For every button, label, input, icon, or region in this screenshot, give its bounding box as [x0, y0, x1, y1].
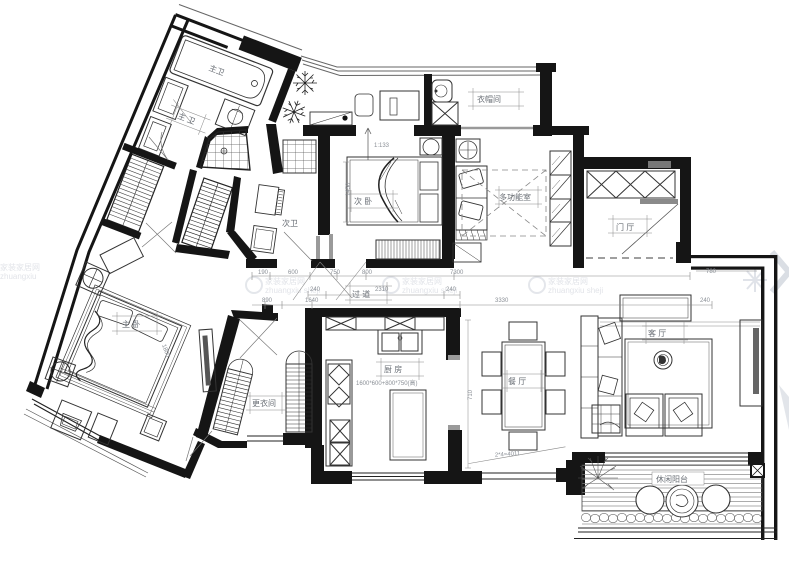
- svg-text:240: 240: [310, 287, 321, 293]
- svg-text:过 道: 过 道: [352, 289, 370, 299]
- svg-text:家装家居网: 家装家居网: [548, 276, 588, 286]
- svg-text:次 卧: 次 卧: [354, 196, 372, 206]
- svg-text:600: 600: [288, 270, 299, 276]
- svg-text:890: 890: [262, 298, 273, 304]
- svg-text:次卫: 次卫: [282, 218, 298, 228]
- svg-text:客 厅: 客 厅: [648, 328, 666, 338]
- svg-text:1600*600+800*750(高): 1600*600+800*750(高): [356, 379, 418, 387]
- svg-text:门 厅: 门 厅: [616, 222, 634, 232]
- svg-text:240: 240: [446, 287, 457, 293]
- svg-text:3330: 3330: [495, 298, 509, 304]
- svg-text:厨 房: 厨 房: [384, 364, 402, 374]
- svg-text:190: 190: [258, 270, 269, 276]
- svg-text:1640: 1640: [305, 298, 319, 304]
- svg-text:衣帽间: 衣帽间: [477, 94, 501, 104]
- svg-text:800: 800: [362, 270, 373, 276]
- svg-text:主 卧: 主 卧: [122, 319, 140, 329]
- svg-text:家装家居网: 家装家居网: [265, 276, 305, 286]
- svg-text:餐 厅: 餐 厅: [508, 377, 526, 386]
- svg-text:休闲阳台: 休闲阳台: [656, 474, 688, 484]
- svg-text:750: 750: [330, 270, 341, 276]
- svg-text:240: 240: [700, 298, 711, 304]
- svg-text:多功能室: 多功能室: [499, 192, 531, 202]
- svg-text:780: 780: [706, 269, 717, 275]
- svg-text:家装家居网: 家装家居网: [0, 262, 40, 272]
- svg-text:7300: 7300: [450, 270, 464, 276]
- svg-text:zhuangxiu: zhuangxiu: [0, 272, 36, 281]
- svg-text:zhuangxiu sheji: zhuangxiu sheji: [548, 286, 603, 295]
- svg-text:1:133: 1:133: [374, 143, 390, 149]
- svg-text:1450: 1450: [346, 182, 352, 196]
- svg-text:更衣间: 更衣间: [252, 398, 276, 408]
- svg-text:家装家居网: 家装家居网: [402, 276, 442, 286]
- svg-text:710: 710: [468, 389, 474, 400]
